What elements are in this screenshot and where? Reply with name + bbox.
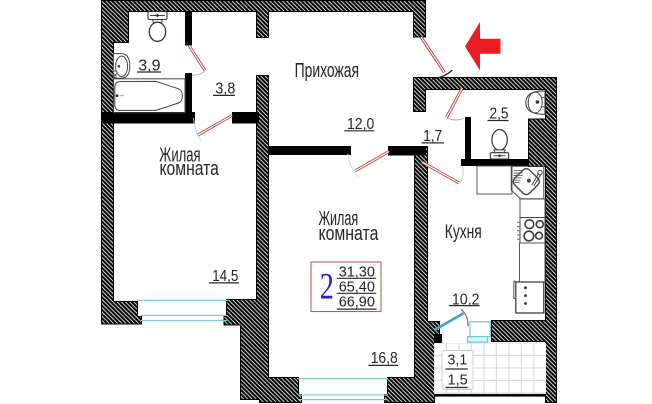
svg-text:1,5: 1,5 [448, 371, 468, 388]
svg-text:Прихожая: Прихожая [295, 59, 359, 82]
svg-text:2: 2 [320, 267, 334, 307]
svg-text:Кухня: Кухня [445, 222, 482, 243]
svg-text:комната: комната [319, 222, 379, 245]
svg-text:16,8: 16,8 [371, 350, 398, 367]
svg-text:3,1: 3,1 [448, 352, 468, 369]
svg-text:комната: комната [160, 157, 220, 180]
svg-text:66,90: 66,90 [339, 294, 375, 310]
